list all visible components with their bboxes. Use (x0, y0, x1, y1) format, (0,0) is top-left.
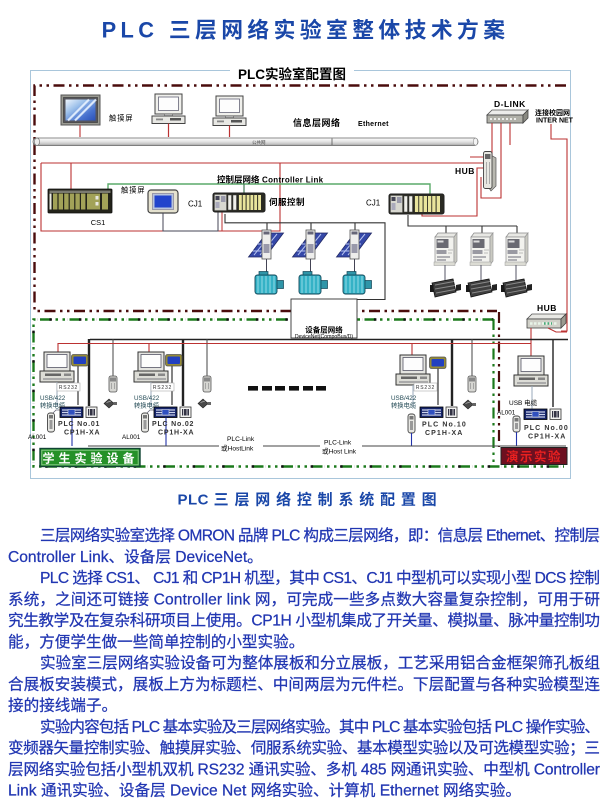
svg-text:三层网络实验室选择 OMRON 品牌 PLC 构成三层网络，: 三层网络实验室选择 OMRON 品牌 PLC 构成三层网络，即：信息层 Ethe… (40, 526, 600, 545)
svg-text:USB/422: USB/422 (40, 395, 66, 402)
svg-text:接的接线端子。: 接的接线端子。 (8, 697, 117, 715)
svg-text:PLC No.02: PLC No.02 (152, 421, 194, 428)
svg-text:USB 电缆: USB 电缆 (509, 398, 538, 407)
svg-text:控制层网络: 控制层网络 (217, 175, 260, 185)
svg-text:PLC No.00: PLC No.00 (524, 425, 569, 432)
svg-text:演示实验: 演示实验 (506, 449, 562, 464)
svg-text:RS232: RS232 (416, 385, 435, 391)
svg-text:实验室三层网络实验设备可为整体展板和分立展板，工艺采用铝合金: 实验室三层网络实验设备可为整体展板和分立展板，工艺采用铝合金框架筛孔板组 (40, 653, 600, 672)
svg-text:Ethernet: Ethernet (358, 121, 389, 128)
svg-text:PLC 三层网络实验室整体技术方案: PLC 三层网络实验室整体技术方案 (102, 17, 510, 42)
svg-text:伺服控制: 伺服控制 (269, 197, 305, 207)
svg-text:Controller Link: Controller Link (262, 176, 324, 185)
svg-text:AL001: AL001 (28, 434, 47, 441)
svg-text:实验内容包括 PLC 基本实验及三层网络实验。其中 PLC: 实验内容包括 PLC 基本实验及三层网络实验。其中 PLC 基本实验包括 PLC… (40, 717, 600, 736)
svg-text:或HostLink: 或HostLink (221, 444, 254, 453)
svg-text:USB/422: USB/422 (391, 395, 417, 402)
svg-text:系统，之间还可链接 Controller link 网，可完: 系统，之间还可链接 Controller link 网，可完成一些多点数大容量复… (8, 590, 600, 608)
svg-text:变频器矢量控制实验、触摸屏实验、伺服系统实验、基本模型实验以: 变频器矢量控制实验、触摸屏实验、伺服系统实验、基本模型实验以及可选模型实验；三 (8, 739, 600, 757)
svg-text:INTER NET: INTER NET (536, 118, 574, 125)
svg-text:AL001: AL001 (497, 410, 516, 417)
svg-text:转换电缆: 转换电缆 (391, 401, 417, 410)
svg-text:CP1H-XA: CP1H-XA (425, 430, 463, 437)
svg-text:RS232: RS232 (153, 385, 172, 391)
svg-text:PLC No.10: PLC No.10 (422, 422, 467, 429)
svg-text:公共网: 公共网 (252, 139, 266, 146)
svg-text:PLC No.01: PLC No.01 (58, 421, 100, 428)
svg-text:能，方便学生做一些简单控制的小型实验。: 能，方便学生做一些简单控制的小型实验。 (8, 633, 304, 651)
svg-text:Link 通讯实验、设备层 Device Net 网络实验、: Link 通讯实验、设备层 Device Net 网络实验、计算机 Ethern… (8, 781, 521, 800)
svg-text:DeviceNet(CompoBus/D): DeviceNet(CompoBus/D) (295, 334, 354, 340)
svg-text:CS1: CS1 (91, 218, 106, 227)
svg-text:设备层网络: 设备层网络 (305, 325, 343, 335)
svg-text:层网络实验包括小型机双机 RS232 通讯实验、多机 485: 层网络实验包括小型机双机 RS232 通讯实验、多机 485 网通讯实验、中型机… (8, 759, 600, 778)
svg-text:合展板安装模式，展板上方为标题栏、中间两层为元件栏。下层配置: 合展板安装模式，展板上方为标题栏、中间两层为元件栏。下层配置与各种实验模型连 (8, 675, 600, 693)
svg-text:信息层网络: 信息层网络 (293, 117, 341, 128)
svg-text:或Host Link: 或Host Link (322, 447, 357, 456)
svg-text:学生实验设备: 学生实验设备 (42, 451, 138, 466)
svg-text:PLC-Link: PLC-Link (227, 436, 255, 443)
svg-text:连接校园网: 连接校园网 (535, 108, 570, 117)
svg-text:PLC 三层网络控制系统配置图: PLC 三层网络控制系统配置图 (178, 490, 443, 508)
svg-text:D-LINK: D-LINK (494, 99, 526, 109)
svg-text:USB/422: USB/422 (134, 395, 160, 402)
svg-text:Controller Link、设备层 DeviceNet。: Controller Link、设备层 DeviceNet。 (8, 548, 263, 566)
svg-text:PLC实验室配置图: PLC实验室配置图 (238, 66, 346, 82)
svg-text:触摸屏: 触摸屏 (109, 114, 134, 123)
svg-text:CP1H-XA: CP1H-XA (158, 430, 194, 437)
svg-text:CP1H-XA: CP1H-XA (64, 430, 100, 437)
svg-text:究生教学及在复杂科研项目上使用。CP1H 小型机集成了开关量: 究生教学及在复杂科研项目上使用。CP1H 小型机集成了开关量、模拟量、脉冲量控制… (8, 612, 600, 630)
svg-text:RS232: RS232 (59, 385, 78, 391)
svg-text:PLC 选择 CS1、 CJ1 和 CP1H 机型，其中 C: PLC 选择 CS1、 CJ1 和 CP1H 机型，其中 CS1、CJ1 中型机… (40, 569, 600, 587)
svg-text:CJ1: CJ1 (188, 200, 203, 209)
svg-text:CP1H-XA: CP1H-XA (528, 434, 566, 441)
svg-text:AL001: AL001 (122, 434, 141, 441)
svg-text:HUB: HUB (537, 303, 557, 313)
svg-text:HUB: HUB (455, 166, 475, 176)
svg-text:触摸屏: 触摸屏 (121, 186, 146, 195)
svg-text:CJ1: CJ1 (366, 199, 381, 208)
svg-text:PLC-Link: PLC-Link (324, 440, 352, 447)
